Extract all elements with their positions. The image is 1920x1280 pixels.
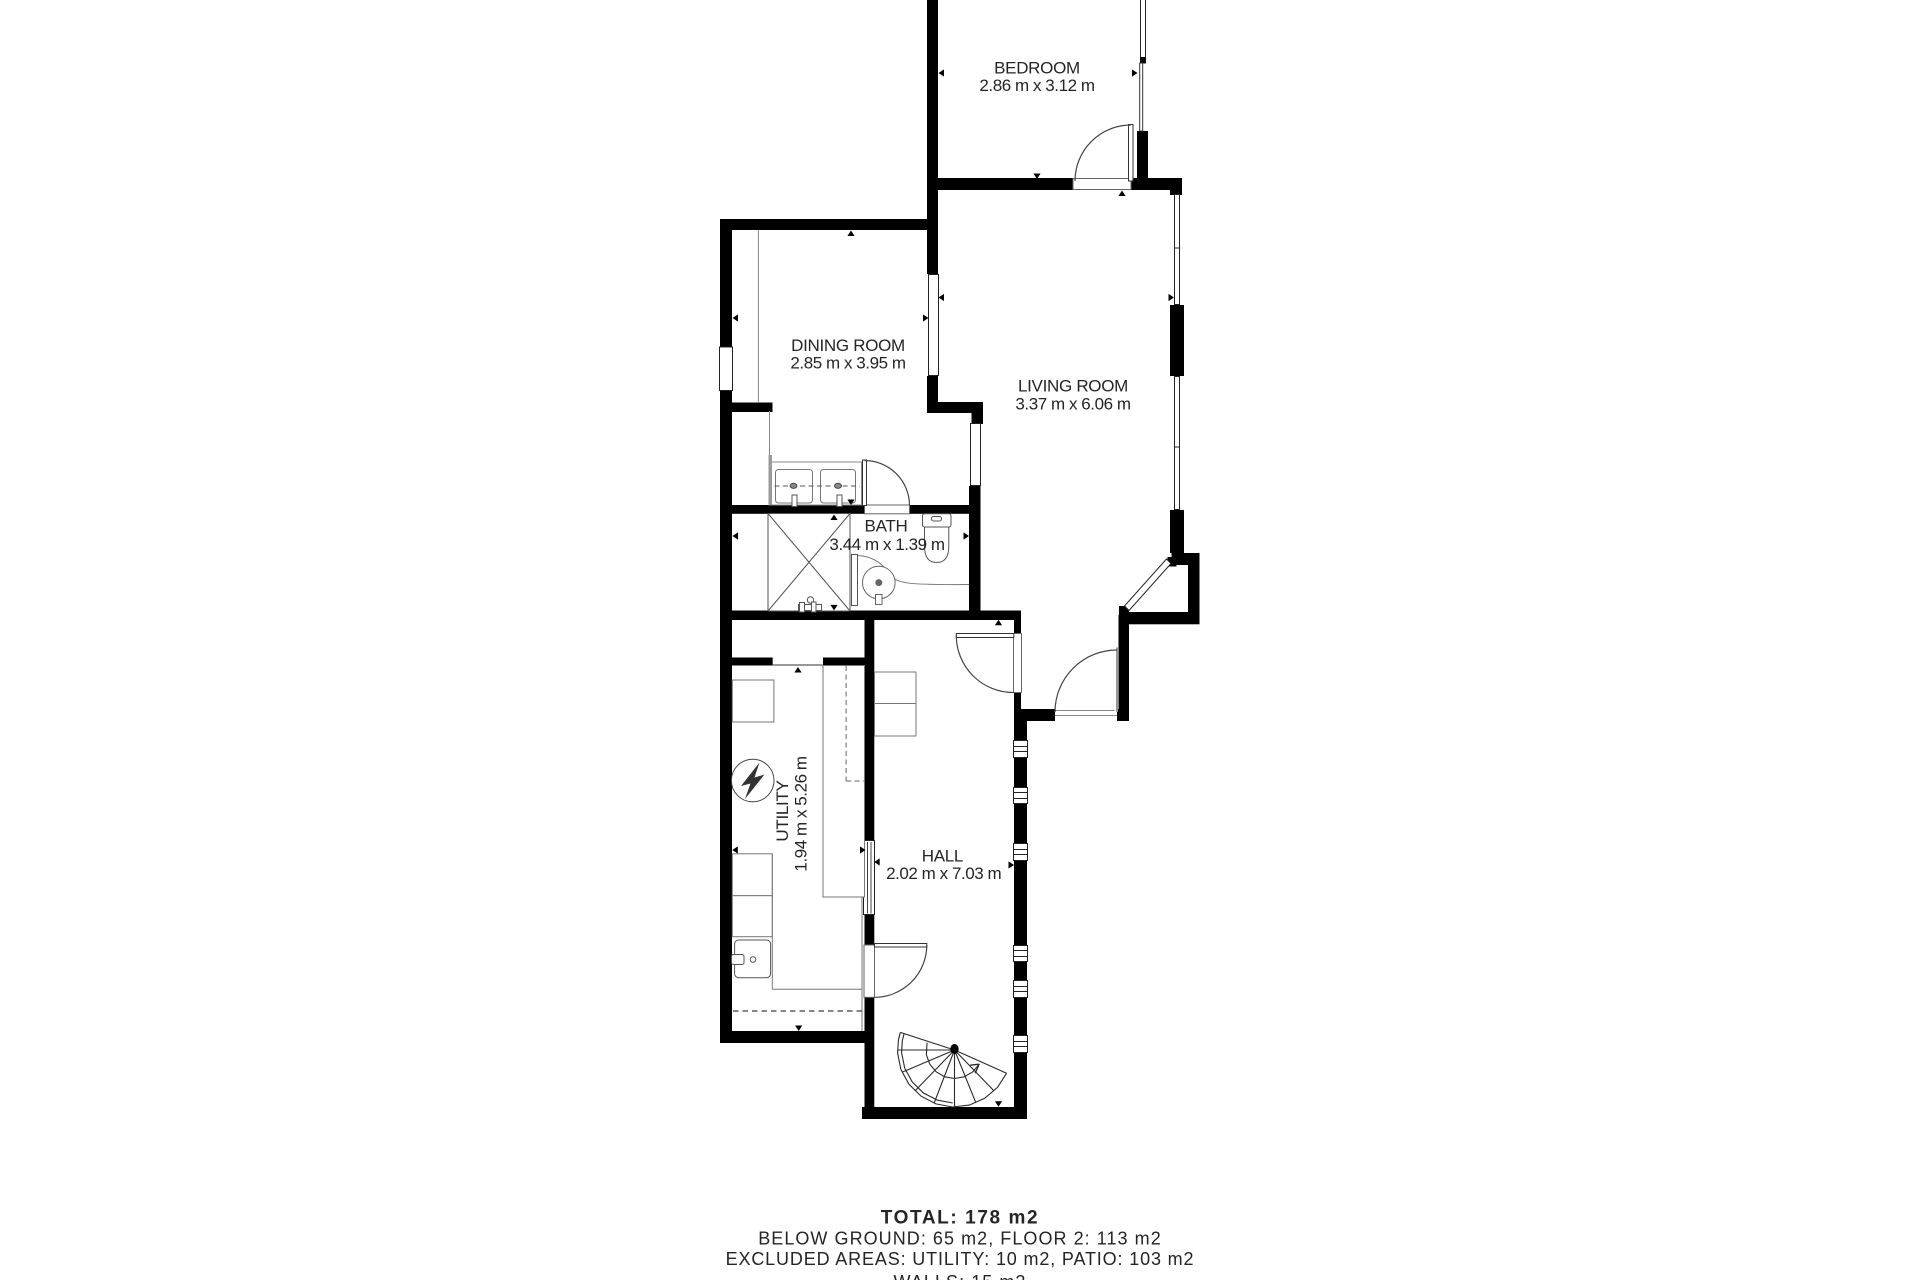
svg-text:DINING ROOM: DINING ROOM <box>791 336 905 355</box>
svg-text:BELOW GROUND: 65 m2, FLOOR 2:: BELOW GROUND: 65 m2, FLOOR 2: 113 m2 <box>758 1229 1162 1249</box>
svg-text:UTILITY: UTILITY <box>773 780 792 841</box>
svg-text:TOTAL: 178 m2: TOTAL: 178 m2 <box>881 1208 1039 1229</box>
svg-text:BATH: BATH <box>865 517 908 536</box>
svg-text:EXCLUDED AREAS: UTILITY: 10 m2: EXCLUDED AREAS: UTILITY: 10 m2, PATIO: 1… <box>726 1249 1195 1269</box>
svg-text:HALL: HALL <box>922 847 963 866</box>
svg-text:1.94 m x 5.26 m: 1.94 m x 5.26 m <box>792 756 811 871</box>
svg-text:3.37 m x 6.06 m: 3.37 m x 6.06 m <box>1015 394 1130 413</box>
svg-text:2.85 m x 3.95 m: 2.85 m x 3.95 m <box>790 354 905 373</box>
svg-text:2.02 m x 7.03 m: 2.02 m x 7.03 m <box>886 864 1001 883</box>
svg-text:WALLS: 15 m2: WALLS: 15 m2 <box>894 1272 1027 1280</box>
svg-text:LIVING ROOM: LIVING ROOM <box>1018 377 1128 396</box>
svg-text:BEDROOM: BEDROOM <box>994 59 1080 78</box>
svg-text:2.86 m x 3.12 m: 2.86 m x 3.12 m <box>979 76 1094 95</box>
svg-text:3.44 m x 1.39 m: 3.44 m x 1.39 m <box>829 535 944 554</box>
